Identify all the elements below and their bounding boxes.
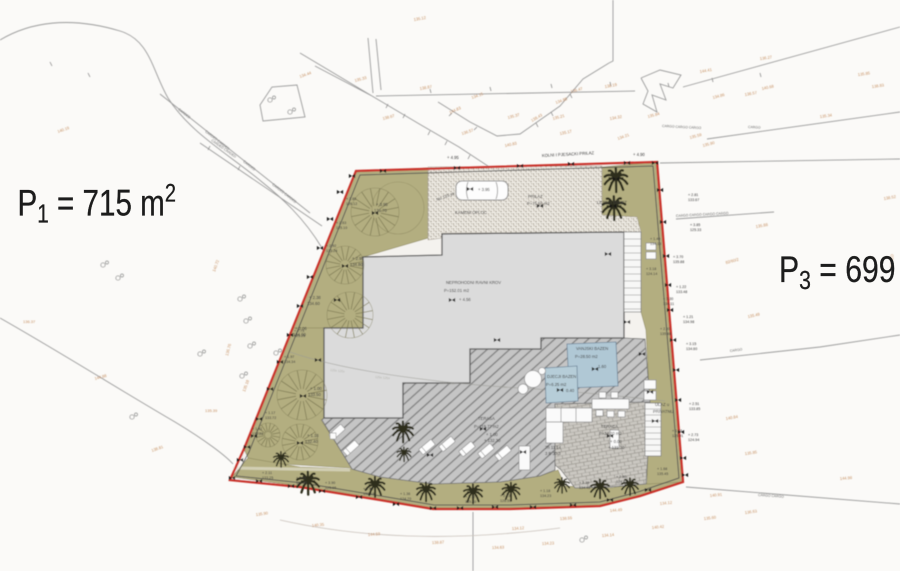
svg-text:+ 1.22: + 1.22 [676, 285, 686, 289]
svg-text:P=6.25 m2: P=6.25 m2 [546, 382, 567, 387]
svg-text:133.72: 133.72 [265, 416, 276, 420]
svg-text:+ 3.90: + 3.90 [325, 481, 335, 485]
svg-text:135.22: 135.22 [252, 432, 263, 436]
svg-text:P=152.01 m2: P=152.01 m2 [444, 288, 470, 293]
svg-text:+ 2.93: + 2.93 [660, 327, 670, 331]
svg-text:VANJSKI BAZEN: VANJSKI BAZEN [576, 346, 608, 351]
svg-text:124.42: 124.42 [616, 480, 627, 484]
svg-text:+ 2.60: + 2.60 [363, 487, 373, 491]
svg-text:136.70: 136.70 [374, 208, 387, 213]
svg-text:+ 2.81: + 2.81 [688, 193, 698, 197]
svg-text:+ 2.80: + 2.80 [616, 475, 626, 479]
svg-text:+ 1.17: + 1.17 [265, 411, 275, 415]
svg-text:+ 3.30: + 3.30 [663, 297, 673, 301]
svg-text:+ 132.30: + 132.30 [484, 438, 501, 443]
svg-text:+ 4.56: + 4.56 [459, 297, 471, 302]
svg-text:133.25: 133.25 [262, 476, 273, 480]
svg-text:135.39: 135.39 [205, 408, 218, 413]
svg-text:+ 1.40: + 1.40 [650, 237, 660, 241]
svg-text:1.60: 1.60 [598, 364, 607, 369]
svg-text:+ 3.15: + 3.15 [686, 342, 696, 346]
svg-text:134.12: 134.12 [512, 525, 525, 531]
svg-text:+ 2.51: + 2.51 [689, 402, 699, 406]
svg-text:125x: 125x [500, 385, 507, 389]
svg-text:134.23: 134.23 [540, 494, 551, 498]
svg-text:+ 4.90: + 4.90 [633, 152, 645, 157]
svg-text:+ 1.00: + 1.00 [486, 432, 498, 437]
svg-text:135.45: 135.45 [657, 472, 668, 476]
svg-text:125.91: 125.91 [672, 434, 683, 438]
svg-text:134.63: 134.63 [492, 545, 505, 550]
svg-text:+ 3.70: + 3.70 [673, 255, 683, 259]
svg-text:+ 1.76: + 1.76 [672, 429, 682, 433]
svg-text:133.50: 133.50 [308, 392, 321, 397]
svg-text:ULAZ u: ULAZ u [655, 402, 670, 407]
svg-text:134.98: 134.98 [683, 320, 694, 324]
svg-text:+ 2.85: + 2.85 [346, 197, 356, 201]
svg-text:125.10: 125.10 [336, 226, 347, 230]
svg-text:+ 1.12: + 1.12 [465, 495, 475, 499]
svg-text:+ 0.00: + 0.00 [610, 439, 622, 444]
svg-text:LEZECI SVIJET: LEZECI SVIJET [597, 200, 627, 205]
svg-text:134.60: 134.60 [686, 347, 697, 351]
svg-text:+ 3.85: + 3.85 [690, 223, 700, 227]
svg-text:135.10: 135.10 [465, 500, 476, 504]
svg-text:TERACA: TERACA [601, 424, 618, 429]
svg-text:+ 2.75: + 2.75 [294, 329, 304, 333]
svg-text:TERASA: TERASA [478, 416, 495, 421]
svg-text:133.48: 133.48 [676, 290, 687, 294]
svg-text:124.49: 124.49 [296, 481, 307, 485]
svg-text:135.88: 135.88 [660, 332, 671, 336]
svg-text:134.23: 134.23 [542, 540, 555, 546]
svg-text:124.94: 124.94 [688, 438, 699, 442]
svg-text:+ 2.73: + 2.73 [688, 433, 698, 437]
svg-text:PRIVATNU: PRIVATNU [653, 409, 674, 414]
svg-text:138.55: 138.55 [560, 515, 573, 521]
svg-text:3 B 30.3: 3 B 30.3 [545, 451, 561, 456]
svg-text:135.88: 135.88 [673, 260, 684, 264]
svg-text:P=75.50 m2: P=75.50 m2 [527, 201, 550, 206]
svg-text:133.67: 133.67 [688, 198, 699, 202]
svg-text:134.11: 134.11 [663, 302, 674, 306]
svg-text:+ 1.00: + 1.00 [310, 386, 322, 391]
svg-text:124.14: 124.14 [646, 272, 657, 276]
svg-text:+ 3.95: + 3.95 [376, 202, 388, 207]
svg-text:134.46: 134.46 [579, 486, 590, 490]
svg-text:134.80: 134.80 [350, 262, 363, 267]
svg-text:134.60: 134.60 [307, 301, 320, 306]
svg-text:125.26: 125.26 [294, 334, 305, 338]
svg-text:+ 1.36: + 1.36 [400, 492, 410, 496]
svg-text:+ 2.11: + 2.11 [262, 471, 272, 475]
svg-text:+ 2.39: + 2.39 [579, 481, 589, 485]
svg-text:+ 131.30: + 131.30 [608, 445, 625, 450]
svg-text:+ 1.97: + 1.97 [284, 355, 294, 359]
svg-text:DJECJI BAZEN: DJECJI BAZEN [547, 374, 576, 379]
svg-text:+ 3.95: + 3.95 [478, 187, 490, 192]
svg-text:+ 4.95: + 4.95 [447, 155, 459, 160]
svg-text:134.34: 134.34 [284, 360, 295, 364]
svg-text:CARGO: CARGO [748, 125, 761, 130]
svg-text:0.40: 0.40 [566, 388, 575, 393]
svg-text:126.59: 126.59 [500, 499, 511, 503]
svg-text:+ 2.95: + 2.95 [352, 256, 364, 261]
svg-text:134.13: 134.13 [650, 242, 661, 246]
svg-text:+ 1.68: + 1.68 [657, 467, 667, 471]
svg-text:P3 = 699: P3 = 699 [779, 249, 896, 295]
svg-text:+ 2.53: + 2.53 [296, 476, 306, 480]
svg-text:138.87: 138.87 [432, 539, 445, 545]
svg-text:+ 3.18: + 3.18 [646, 267, 656, 271]
svg-text:125.96: 125.96 [325, 486, 336, 490]
svg-text:NEPROHODNI RAVNI KROV: NEPROHODNI RAVNI KROV [446, 280, 501, 285]
svg-text:PRILAZ: PRILAZ [528, 194, 543, 199]
svg-text:136.37: 136.37 [23, 319, 36, 324]
svg-text:+ 1.16: + 1.16 [307, 433, 319, 438]
svg-text:+ 1.41: + 1.41 [252, 427, 262, 431]
svg-text:124.70: 124.70 [400, 497, 411, 501]
svg-text:+ 2.63: + 2.63 [336, 221, 346, 225]
svg-text:P=28.50 m2: P=28.50 m2 [575, 354, 598, 359]
svg-text:+ 1.21: + 1.21 [683, 315, 693, 319]
svg-text:132.40: 132.40 [305, 439, 318, 444]
svg-text:126.12: 126.12 [346, 202, 357, 206]
svg-text:7h 11.14: 7h 11.14 [545, 445, 562, 450]
svg-text:125x 125x: 125x 125x [440, 381, 455, 386]
svg-text:+ 1.18: + 1.18 [540, 489, 550, 493]
svg-text:133.24: 133.24 [326, 249, 337, 253]
svg-text:+ 2.38: + 2.38 [309, 295, 321, 300]
svg-text:125.33: 125.33 [690, 228, 701, 232]
svg-text:133.85: 133.85 [689, 407, 700, 411]
svg-text:133.19: 133.19 [363, 492, 374, 496]
svg-text:P=34.20 m2: P=34.20 m2 [599, 431, 622, 436]
svg-text:+ 2.23: + 2.23 [500, 494, 510, 498]
svg-text:144.59: 144.59 [368, 531, 381, 537]
svg-text:P=119.77 m2: P=119.77 m2 [474, 424, 499, 429]
svg-text:KAMENI OPLOC: KAMENI OPLOC [455, 210, 487, 215]
svg-text:+ 2.92: + 2.92 [326, 244, 336, 248]
